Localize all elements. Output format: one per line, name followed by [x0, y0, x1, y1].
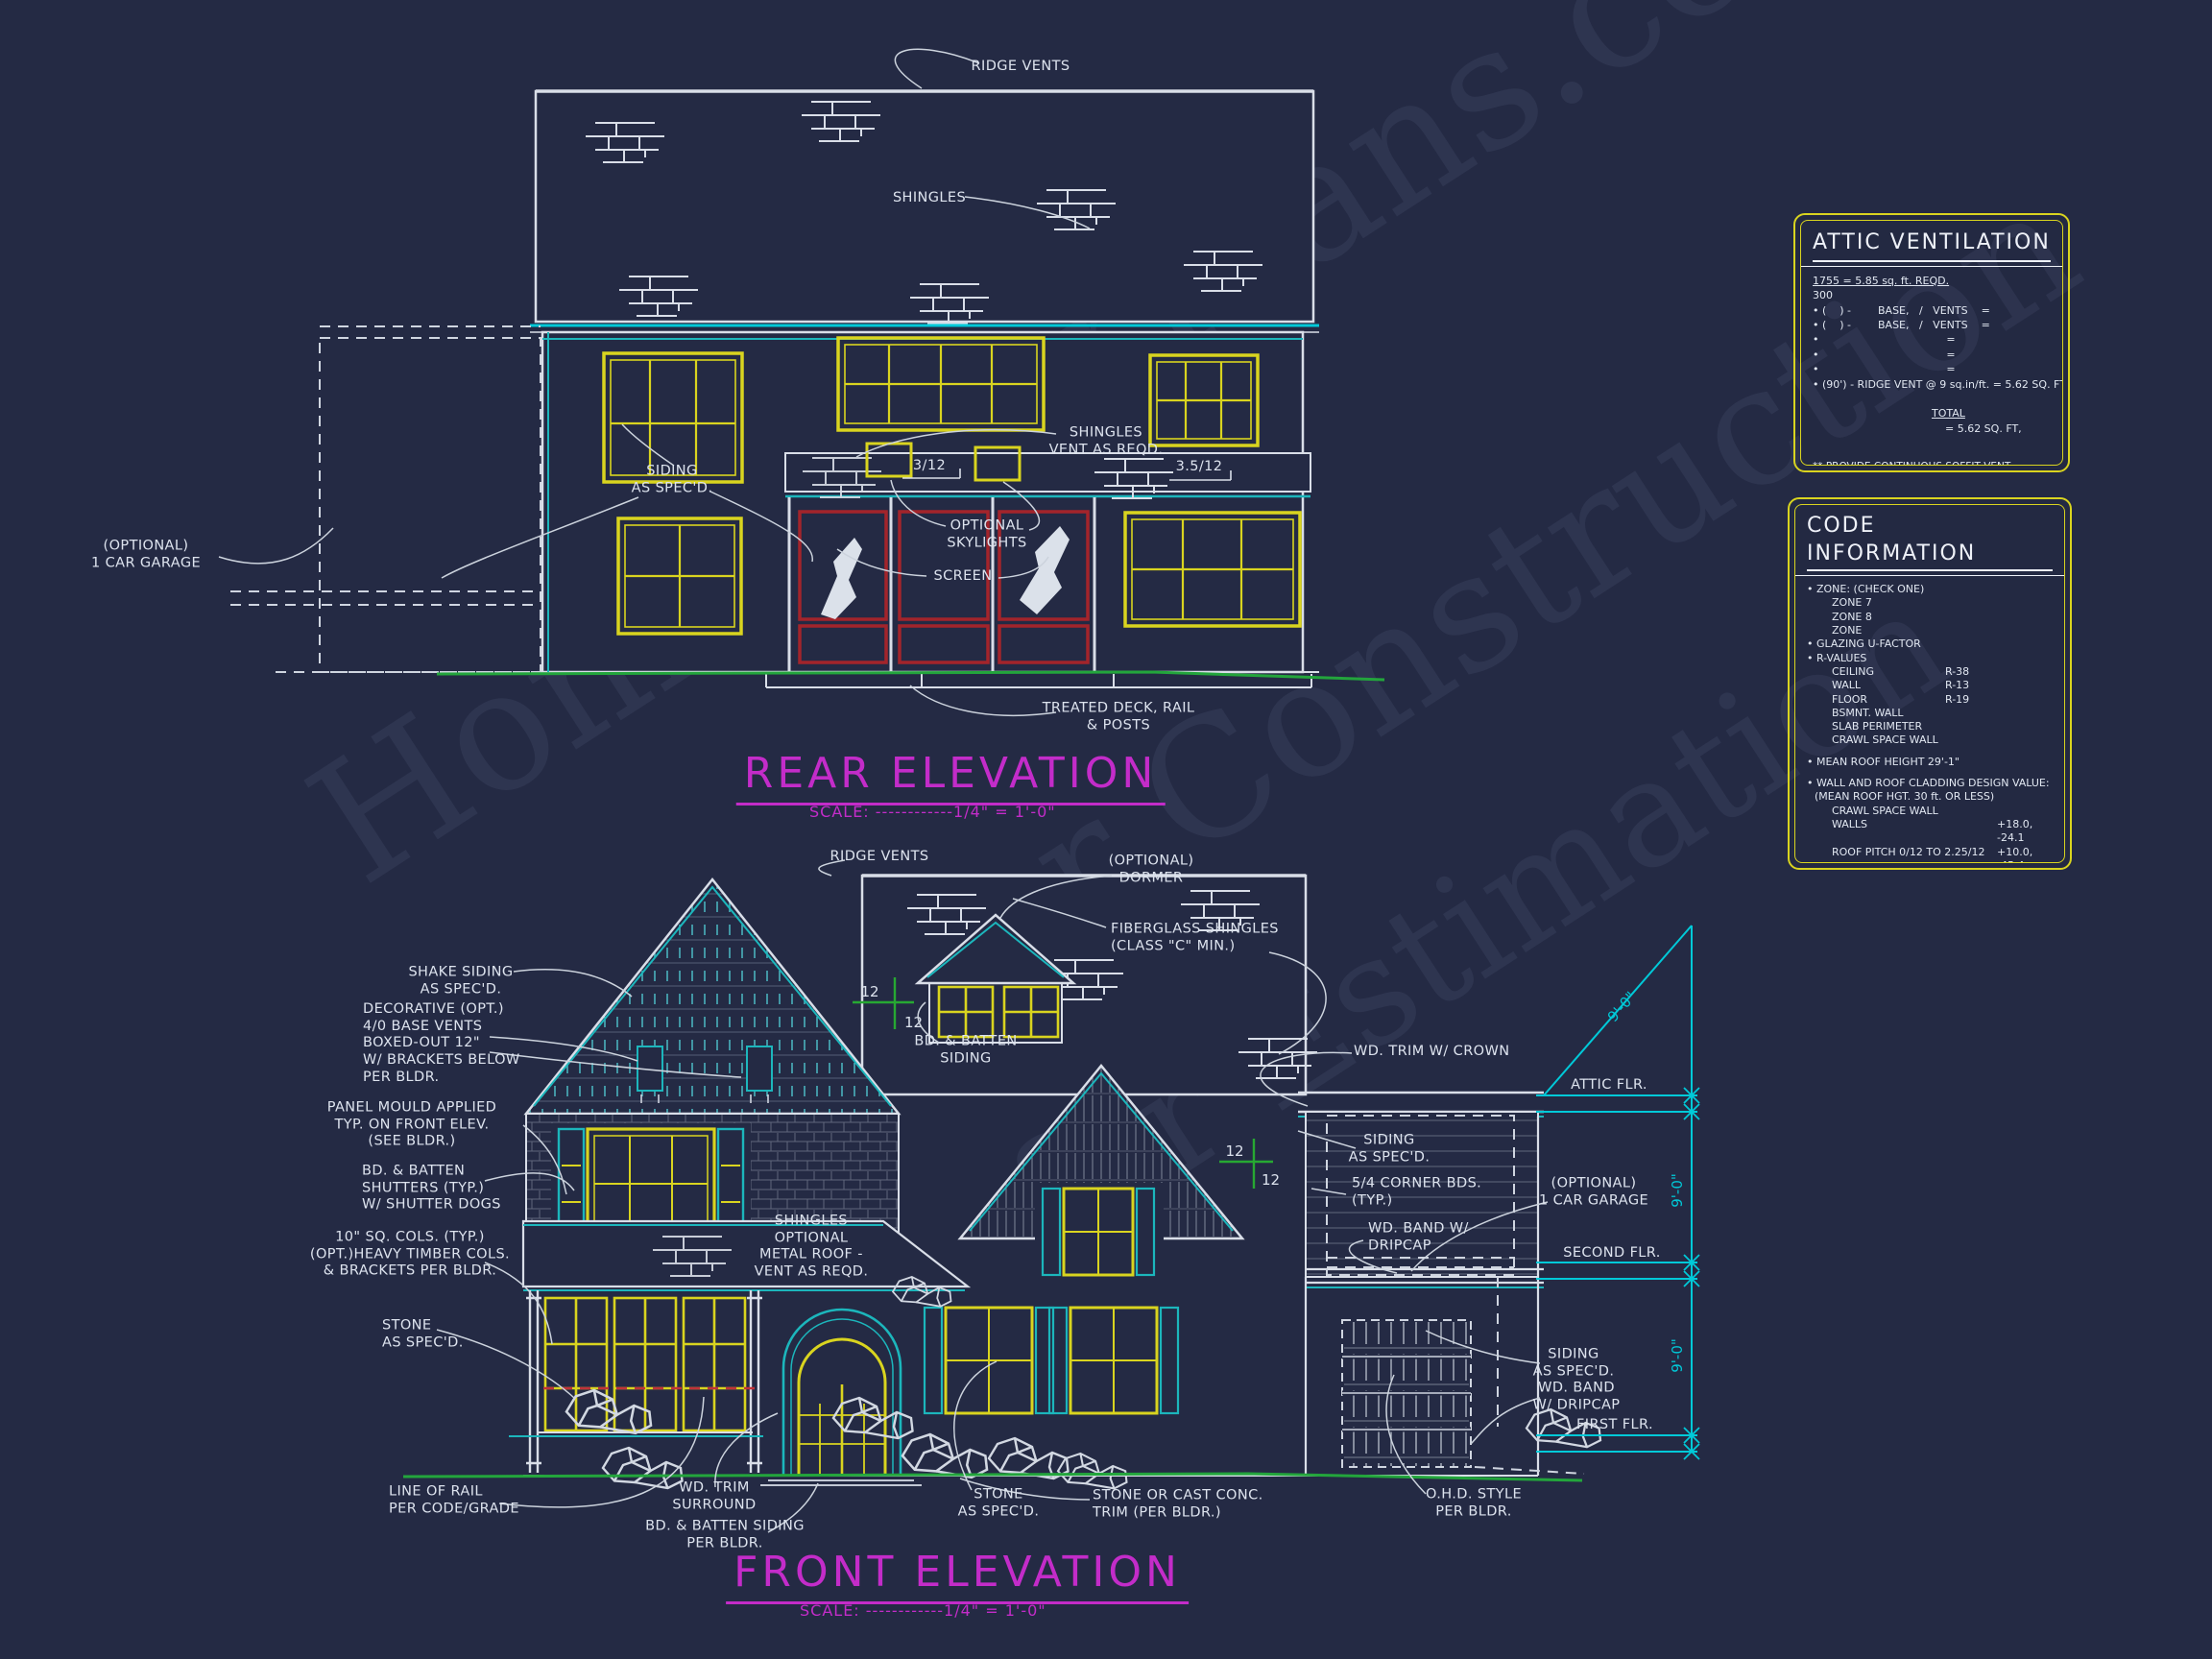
rear-label-siding: SIDING AS SPEC'D.: [632, 463, 713, 496]
code-rvalue-row: SLAB PERIMETER: [1807, 720, 2053, 733]
code-zone-header: • ZONE: (CHECK ONE): [1807, 583, 2053, 596]
front-label-second-flr: SECOND FLR.: [1563, 1245, 1661, 1262]
attic-total-value: = 5.62 SQ. FT,: [1932, 422, 2022, 435]
attic-total-row: TOTAL = 5.62 SQ. FT,: [1813, 392, 2051, 451]
attic-total-label: TOTAL: [1932, 407, 1965, 420]
front-label-corner-bds: 5/4 CORNER BDS. (TYP.): [1352, 1175, 1481, 1209]
front-elevation-title: FRONT ELEVATION: [726, 1548, 1189, 1604]
svg-text:9'-0": 9'-0": [1669, 1338, 1686, 1373]
code-rvalue-row: CEILINGR-38: [1807, 665, 2053, 679]
code-zone-option: ZONE: [1807, 624, 2053, 637]
code-cladding-row: WALLS+18.0, -24.1: [1807, 818, 2053, 846]
front-label-band-dripcap-mid: WD. BAND W/ DRIPCAP: [1368, 1220, 1469, 1254]
rear-label-screen: SCREEN: [934, 568, 993, 586]
front-label-ridge-vents: RIDGE VENTS: [830, 849, 929, 866]
svg-text:12: 12: [860, 983, 878, 1000]
front-label-siding-mid: SIDING AS SPEC'D.: [1349, 1132, 1431, 1166]
rear-label-shingles-vent: SHINGLES VENT AS REQD.: [1049, 424, 1164, 458]
attic-box-title: ATTIC VENTILATION: [1813, 228, 2051, 262]
rear-label-garage: (OPTIONAL) 1 CAR GARAGE: [91, 538, 201, 571]
code-rvalue-row: CRAWL SPACE WALL: [1807, 733, 2053, 747]
attic-row: • (90') - RIDGE VENT @ 9 sq.in/ft. = 5.6…: [1813, 377, 2051, 392]
attic-row: • =: [1813, 332, 2051, 347]
attic-row: • =: [1813, 348, 2051, 362]
rear-label-pitch-35-12: 3.5/12: [1176, 459, 1223, 476]
code-rvalue-row: WALLR-13: [1807, 679, 2053, 692]
front-label-garage: (OPTIONAL) 1 CAR GARAGE: [1539, 1175, 1648, 1209]
attic-req-line: 1755 = 5.85 sq. ft. REQD.: [1813, 274, 2051, 288]
front-label-attic-flr: ATTIC FLR.: [1571, 1077, 1647, 1094]
rear-label-deck: TREATED DECK, RAIL & POSTS: [1043, 700, 1195, 733]
code-glazing: • GLAZING U-FACTOR: [1807, 637, 2053, 651]
attic-ventilation-box: ATTIC VENTILATION 1755 = 5.85 sq. ft. RE…: [1793, 213, 2070, 472]
attic-row: • ( ) - BASE, / VENTS =: [1813, 318, 2051, 332]
code-box-title: CODE INFORMATION: [1807, 513, 2053, 571]
front-label-first-flr: FIRST FLR.: [1576, 1417, 1653, 1434]
code-information-box: CODE INFORMATION • ZONE: (CHECK ONE) ZON…: [1788, 497, 2072, 870]
front-elevation-scale: SCALE: ------------1/4" = 1'-0": [800, 1601, 1046, 1620]
attic-note-soffit: ** PROVIDE CONTINUOUS SOFFIT VENT SURROU…: [1813, 460, 2051, 466]
front-label-base-vents: DECORATIVE (OPT.) 4/0 BASE VENTS BOXED-O…: [363, 1001, 520, 1086]
rear-elevation-title: REAR ELEVATION: [736, 749, 1166, 805]
rear-label-skylights: OPTIONAL SKYLIGHTS: [947, 517, 1026, 551]
code-rvalue-row: BSMNT. WALL: [1807, 707, 2053, 720]
front-label-shutters: BD. & BATTEN SHUTTERS (TYP.) W/ SHUTTER …: [362, 1163, 501, 1214]
code-zone-option: ZONE 8: [1807, 611, 2053, 624]
code-cladding-header: • WALL AND ROOF CLADDING DESIGN VALUE:: [1807, 777, 2053, 790]
front-label-dormer: (OPTIONAL) DORMER: [1109, 853, 1194, 886]
front-label-cols: 10" SQ. COLS. (TYP.) (OPT.)HEAVY TIMBER …: [310, 1229, 510, 1280]
code-cladding-row: ROOF PITCH 0/12 TO 2.25/12+10.0, -45.4: [1807, 846, 2053, 863]
rear-elevation-drawing: [219, 49, 1384, 715]
front-label-shake: SHAKE SIDING AS SPEC'D.: [408, 964, 513, 998]
front-label-fiberglass: FIBERGLASS SHINGLES (CLASS "C" MIN.): [1111, 921, 1279, 954]
front-label-siding-low: SIDING AS SPEC'D.: [1533, 1346, 1615, 1380]
svg-text:12: 12: [1262, 1171, 1280, 1189]
svg-text:12: 12: [904, 1014, 923, 1031]
attic-req-denominator: 300: [1813, 288, 2051, 302]
front-label-band-dripcap-low: WD. BAND W/ DRIPCAP: [1533, 1380, 1621, 1413]
blueprint-sheet: HomeFloorPlans.com for Construction for …: [0, 0, 2212, 1659]
code-cladding-sub: (MEAN ROOF HGT. 30 ft. OR LESS): [1807, 790, 2053, 804]
front-label-stone-cast: STONE OR CAST CONC. TRIM (PER BLDR.): [1093, 1487, 1263, 1521]
front-label-porch-roof: SHINGLES OPTIONAL METAL ROOF - VENT AS R…: [755, 1214, 869, 1282]
code-rvalue-row: FLOORR-19: [1807, 693, 2053, 707]
front-label-trim-crown: WD. TRIM W/ CROWN: [1354, 1044, 1509, 1061]
front-label-panel-mould: PANEL MOULD APPLIED TYP. ON FRONT ELEV. …: [327, 1099, 497, 1150]
front-label-stone-mid: STONE AS SPEC'D.: [958, 1486, 1040, 1520]
code-mean-roof: • MEAN ROOF HEIGHT 29'-1": [1807, 756, 2053, 769]
rear-label-pitch-3-12: 3/12: [913, 458, 946, 475]
code-zone-option: ZONE 7: [1807, 596, 2053, 610]
rear-elevation-scale: SCALE: ------------1/4" = 1'-0": [809, 803, 1056, 821]
front-label-trim-surround: WD. TRIM SURROUND: [672, 1479, 756, 1513]
svg-text:9'-0": 9'-0": [1604, 988, 1640, 1025]
rear-label-ridge-vents: RIDGE VENTS: [972, 59, 1070, 76]
front-label-stone-left: STONE AS SPEC'D.: [382, 1317, 464, 1351]
svg-text:12: 12: [1225, 1142, 1243, 1160]
attic-row: • =: [1813, 362, 2051, 376]
front-label-rail: LINE OF RAIL PER CODE/GRADE: [389, 1483, 519, 1517]
front-label-ohd: O.H.D. STYLE PER BLDR.: [1426, 1486, 1522, 1520]
attic-row: • ( ) - BASE, / VENTS =: [1813, 303, 2051, 318]
svg-text:9'-0": 9'-0": [1669, 1173, 1686, 1208]
front-label-batten-dormer: BD. & BATTEN SIDING: [914, 1033, 1017, 1067]
code-rvalues-header: • R-VALUES: [1807, 652, 2053, 665]
rear-label-shingles: SHINGLES: [893, 190, 966, 207]
code-cladding-row: CRAWL SPACE WALL: [1807, 805, 2053, 818]
